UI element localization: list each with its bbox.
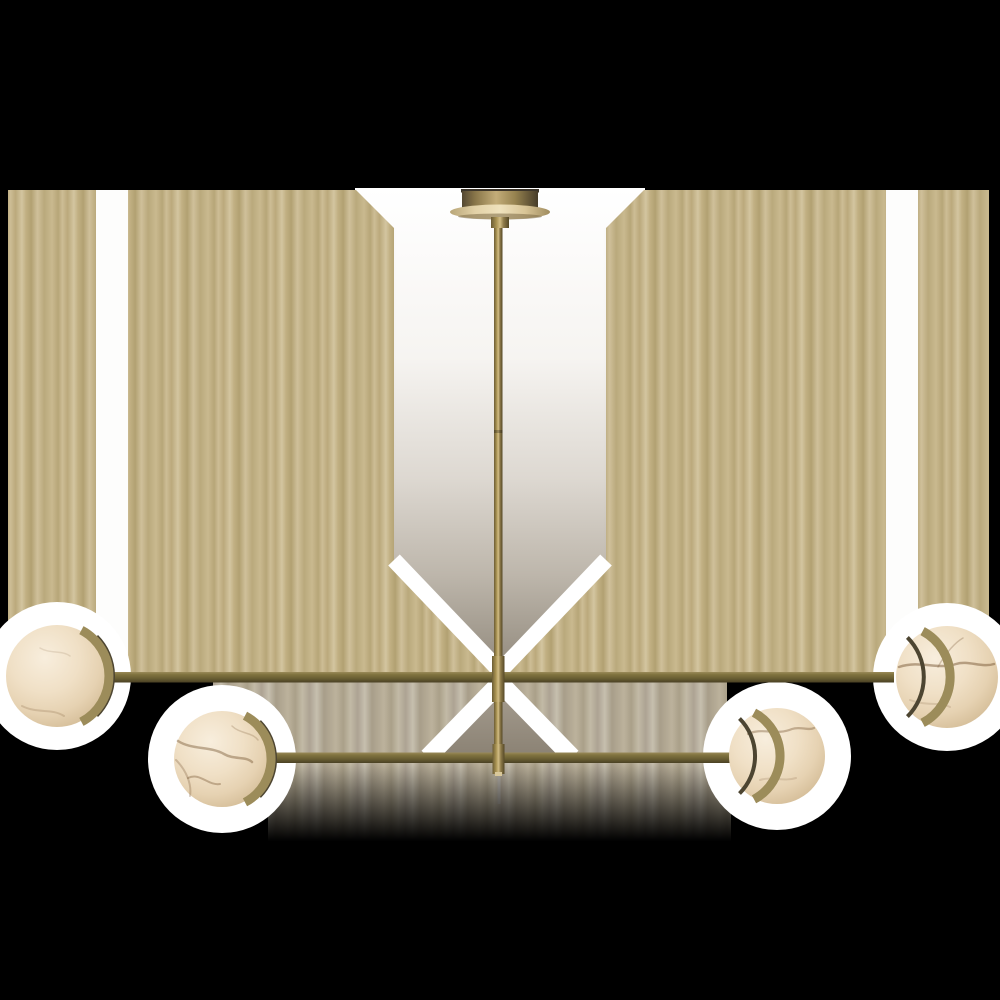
stem-lower-junction-collar xyxy=(493,744,505,774)
chandelier-product-image: Product photo of a two-tier linear brass… xyxy=(0,0,1000,1000)
globe-upper-left xyxy=(6,625,113,727)
canopy-collar xyxy=(491,217,509,228)
globe-lower-right xyxy=(729,708,825,804)
white-gap-left xyxy=(96,190,128,672)
globe-lower-left xyxy=(174,711,275,807)
globe-upper-right xyxy=(896,626,998,728)
white-gap-right xyxy=(886,190,918,672)
tan-panel-far-left xyxy=(8,190,96,672)
tan-panel-far-right xyxy=(918,190,989,672)
stem-tip xyxy=(495,772,502,776)
stem-upper-junction-collar xyxy=(492,656,505,702)
product-photo-stage: Product photo of a two-tier linear brass… xyxy=(0,0,1000,1000)
stem-coupler-seam xyxy=(494,430,503,433)
